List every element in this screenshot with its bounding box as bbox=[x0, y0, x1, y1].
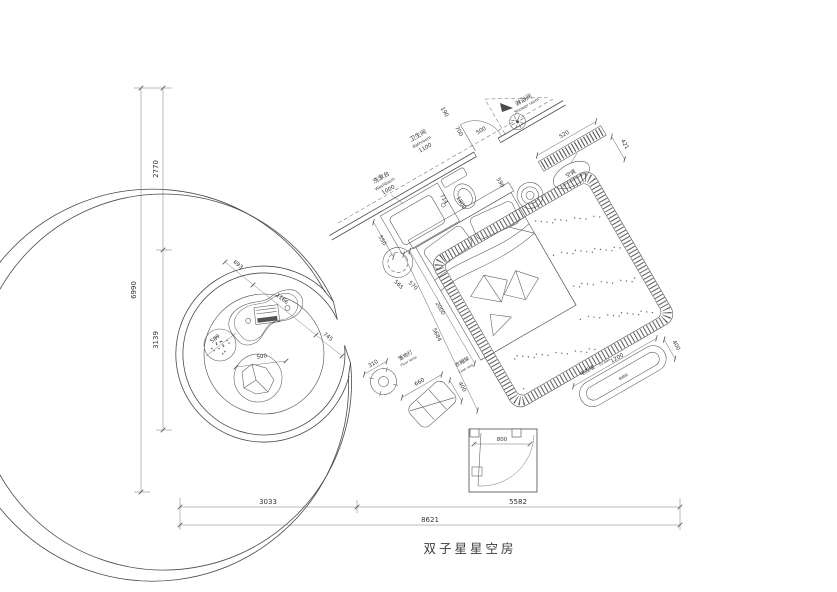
floor-lamp bbox=[366, 364, 402, 400]
bottom-right-dim: 5582 bbox=[509, 498, 527, 506]
lounge-dim-labels: 693 1166 745 589 500 bbox=[209, 260, 334, 361]
left-bottom-dim: 3139 bbox=[152, 331, 160, 349]
overall-height-dim: 6990 bbox=[130, 281, 138, 299]
beanbag-chair bbox=[234, 354, 282, 402]
bottom-left-dim: 3033 bbox=[259, 498, 277, 506]
stool-dim-b: 570 bbox=[407, 280, 419, 292]
bed-width-dim: 1800 bbox=[455, 196, 467, 212]
dim-589: 589 bbox=[209, 333, 221, 344]
sheet-dimensions: 6990 2770 3139 3033 5582 8621 bbox=[130, 88, 680, 530]
left-top-dim: 2770 bbox=[152, 160, 160, 178]
stool-dim-a: 565 bbox=[392, 279, 404, 291]
overall-width-dim: 8621 bbox=[421, 516, 439, 524]
diag-dim: 5684 bbox=[430, 327, 442, 343]
dim-1166: 1166 bbox=[274, 293, 289, 307]
washbasin-depth-dim: 550 bbox=[377, 235, 388, 248]
door-jamb-right bbox=[512, 429, 521, 437]
dim-190: 190 bbox=[439, 106, 450, 119]
shower-head-icon bbox=[507, 111, 529, 133]
lounge-furniture: 693 1166 745 589 500 bbox=[204, 260, 342, 402]
beanbag-dim-line bbox=[236, 361, 286, 367]
rack-depth-dim: 400 bbox=[457, 381, 468, 394]
door-jamb-left bbox=[470, 429, 479, 437]
tv-unit-label: 电视机 bbox=[617, 372, 629, 382]
floor-plan-drawing: 洗漱台 Washbasin 1000 550 卫生间 Bathroom 1100… bbox=[0, 0, 837, 592]
tv-label-cn: 电视墙 bbox=[578, 363, 595, 378]
dim-693: 693 bbox=[232, 260, 244, 271]
dim-700: 700 bbox=[453, 126, 464, 139]
entry-vestibule: 800 bbox=[469, 429, 537, 492]
blanket bbox=[439, 233, 576, 360]
headboard bbox=[408, 182, 513, 249]
floor-plan-sheet: 洗漱台 Washbasin 1000 550 卫生间 Bathroom 1100… bbox=[0, 0, 837, 592]
dim-714: 714 bbox=[438, 193, 449, 206]
kidney-table bbox=[223, 282, 311, 351]
blanket-folds bbox=[465, 252, 552, 335]
ac-depth-dim: 421 bbox=[619, 138, 629, 150]
washbasin-counter bbox=[380, 183, 459, 254]
tv-depth-dim: 400 bbox=[670, 340, 681, 353]
dim-590: 590 bbox=[494, 177, 505, 190]
laptop bbox=[254, 305, 280, 325]
rack-width-dim: 660 bbox=[414, 377, 427, 388]
drawing-title: 双子星星空房 bbox=[423, 541, 516, 556]
lamp-dim: 310 bbox=[367, 359, 380, 370]
rug bbox=[429, 168, 677, 412]
dim-500: 500 bbox=[256, 353, 268, 360]
main-room-walls bbox=[0, 189, 351, 581]
north-pointer-icon bbox=[500, 103, 513, 112]
bed-length-dim: 2000 bbox=[434, 301, 446, 317]
coat-rack bbox=[406, 378, 459, 430]
dotted-pouf bbox=[204, 329, 236, 361]
entry-door-dim: 800 bbox=[497, 437, 508, 443]
shower-door-dim: 500 bbox=[475, 126, 488, 137]
ac-length-dim: 520 bbox=[558, 130, 571, 141]
air-conditioner-unit bbox=[538, 126, 606, 172]
rug-dot-texture bbox=[453, 190, 659, 391]
